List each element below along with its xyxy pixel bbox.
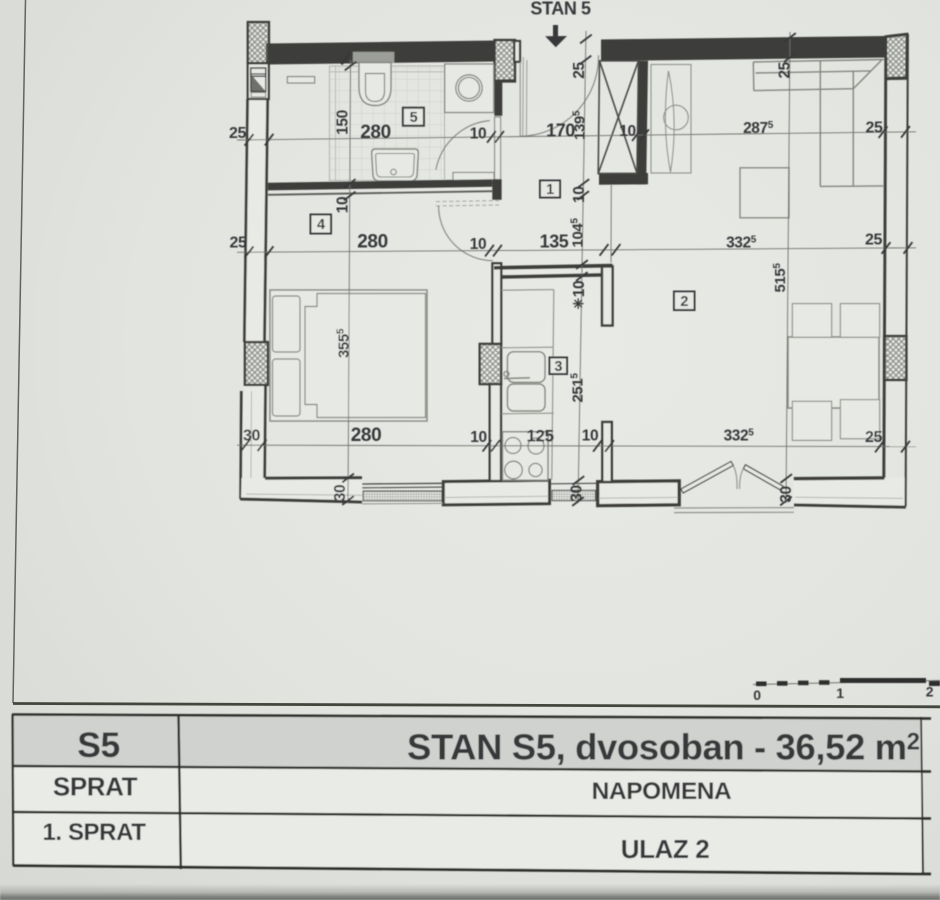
- svg-text:25: 25: [865, 429, 882, 446]
- svg-text:5: 5: [410, 110, 418, 126]
- svg-text:280: 280: [351, 425, 382, 446]
- svg-text:1: 1: [836, 685, 844, 701]
- svg-text:150: 150: [334, 110, 351, 135]
- svg-text:STAN 5: STAN 5: [530, 0, 591, 19]
- svg-text:4: 4: [317, 217, 325, 233]
- svg-text:2: 2: [680, 294, 688, 310]
- svg-text:25: 25: [229, 125, 246, 142]
- svg-text:STAN S5, dvosoban - 36,52 m2: STAN S5, dvosoban - 36,52 m2: [407, 727, 920, 768]
- svg-text:0: 0: [753, 687, 761, 703]
- svg-text:280: 280: [360, 122, 391, 143]
- svg-text:25: 25: [230, 235, 247, 252]
- svg-text:10: 10: [470, 429, 486, 446]
- svg-text:10: 10: [571, 187, 588, 203]
- svg-text:25: 25: [865, 232, 882, 249]
- svg-text:ULAZ 2: ULAZ 2: [621, 834, 710, 864]
- svg-text:S5: S5: [77, 725, 120, 765]
- svg-text:10: 10: [335, 197, 352, 213]
- svg-text:25: 25: [866, 120, 883, 137]
- svg-text:3: 3: [554, 359, 562, 375]
- svg-text:30: 30: [332, 485, 349, 501]
- svg-text:30: 30: [778, 486, 795, 502]
- svg-text:10: 10: [619, 123, 635, 140]
- svg-text:10: 10: [470, 126, 486, 143]
- svg-text:30: 30: [243, 427, 260, 444]
- svg-text:25: 25: [571, 62, 588, 79]
- svg-text:125: 125: [526, 427, 553, 446]
- svg-text:10: 10: [582, 428, 598, 445]
- svg-text:10: 10: [470, 236, 486, 253]
- svg-text:25: 25: [777, 61, 794, 78]
- svg-text:2: 2: [926, 684, 934, 700]
- svg-text:280: 280: [357, 232, 388, 253]
- svg-text:1. SPRAT: 1. SPRAT: [42, 819, 146, 846]
- svg-text:10: 10: [571, 281, 588, 297]
- svg-text:SPRAT: SPRAT: [53, 772, 138, 802]
- svg-text:30: 30: [569, 485, 586, 501]
- svg-text:135: 135: [540, 231, 569, 251]
- svg-text:1: 1: [546, 182, 554, 198]
- svg-text:NAPOMENA: NAPOMENA: [592, 778, 732, 805]
